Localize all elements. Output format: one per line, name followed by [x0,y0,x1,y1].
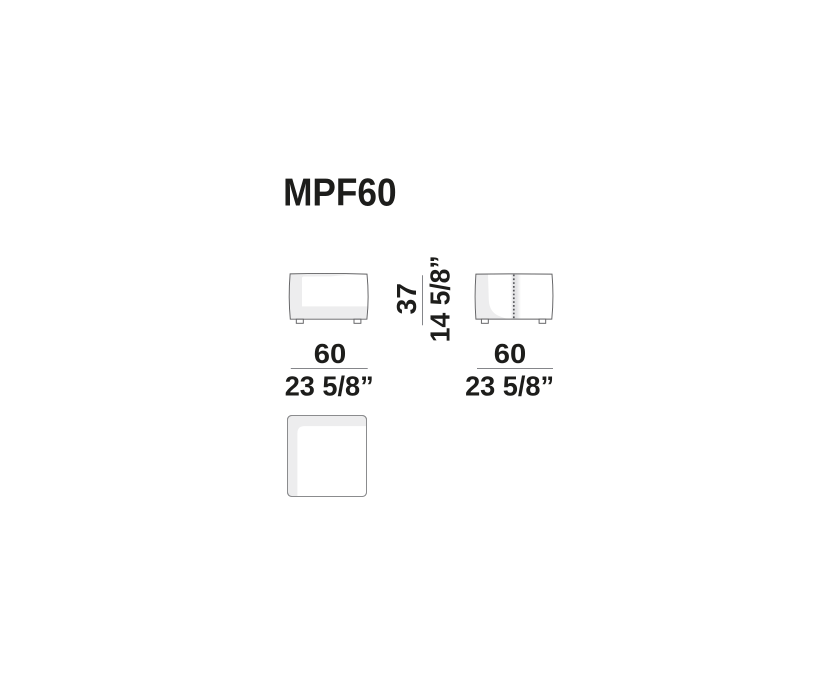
svg-text:60: 60 [494,338,527,369]
svg-text:23 5/8”: 23 5/8” [465,370,554,401]
svg-text:14 5/8”: 14 5/8” [424,255,455,342]
svg-text:37: 37 [391,283,422,315]
svg-text:23 5/8”: 23 5/8” [285,370,374,401]
svg-text:MPF60: MPF60 [283,172,397,215]
svg-text:60: 60 [314,338,347,369]
